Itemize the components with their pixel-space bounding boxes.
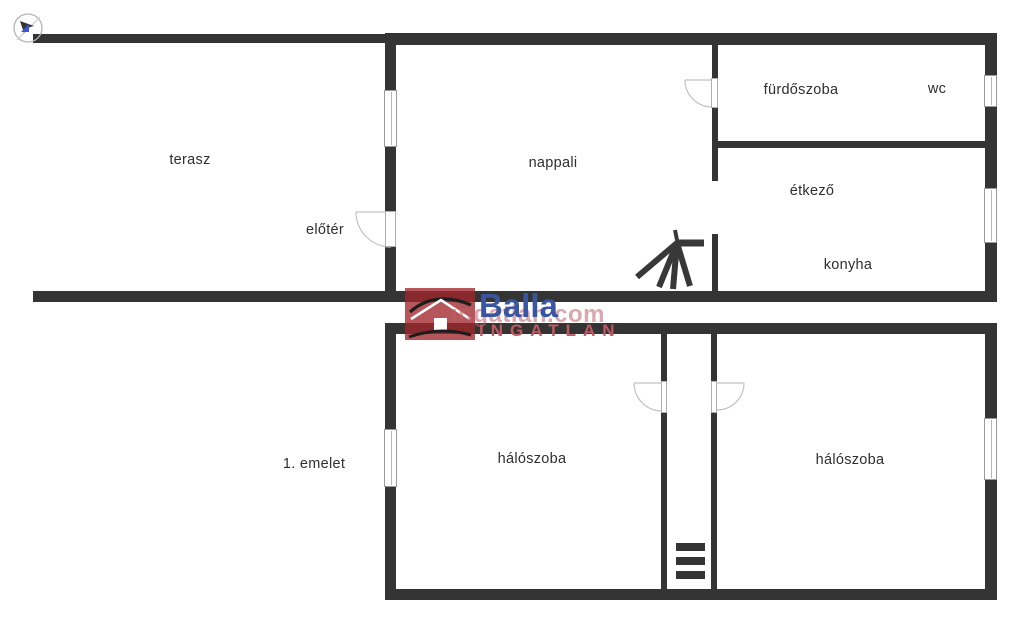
room-label-eloter: előtér bbox=[306, 222, 344, 238]
floor-plan-canvas: terasz előtér nappali fürdőszoba wc étke… bbox=[0, 0, 1023, 629]
room-label-haloszoba-left: hálószoba bbox=[498, 451, 567, 467]
brand-name-text: Balla bbox=[479, 289, 558, 322]
door-leaf bbox=[711, 381, 717, 413]
window-symbol bbox=[984, 418, 997, 480]
window-symbol bbox=[984, 188, 997, 243]
door-leaf bbox=[385, 211, 396, 247]
door-arc bbox=[685, 80, 712, 107]
window-symbol bbox=[384, 429, 397, 487]
room-label-wc: wc bbox=[928, 81, 946, 97]
door-leaf bbox=[711, 78, 718, 108]
room-label-nappali: nappali bbox=[529, 155, 578, 171]
brand-subtitle-text: INGATLAN bbox=[479, 322, 622, 339]
room-label-terasz: terasz bbox=[169, 152, 210, 168]
room-label-haloszoba-right: hálószoba bbox=[816, 452, 885, 468]
room-label-konyha: konyha bbox=[824, 257, 873, 273]
room-label-etkezo: étkező bbox=[790, 183, 835, 199]
door-leaf bbox=[661, 381, 667, 413]
floor-label-emelet: 1. emelet bbox=[283, 456, 345, 472]
window-symbol bbox=[384, 90, 397, 147]
door-arc bbox=[634, 383, 662, 411]
door-arc bbox=[717, 383, 744, 410]
window-symbol bbox=[984, 75, 997, 107]
compass-orientation-icon[interactable] bbox=[7, 7, 49, 49]
room-label-furdoszoba: fürdőszoba bbox=[764, 82, 839, 98]
stair-fan-symbol bbox=[637, 230, 704, 289]
